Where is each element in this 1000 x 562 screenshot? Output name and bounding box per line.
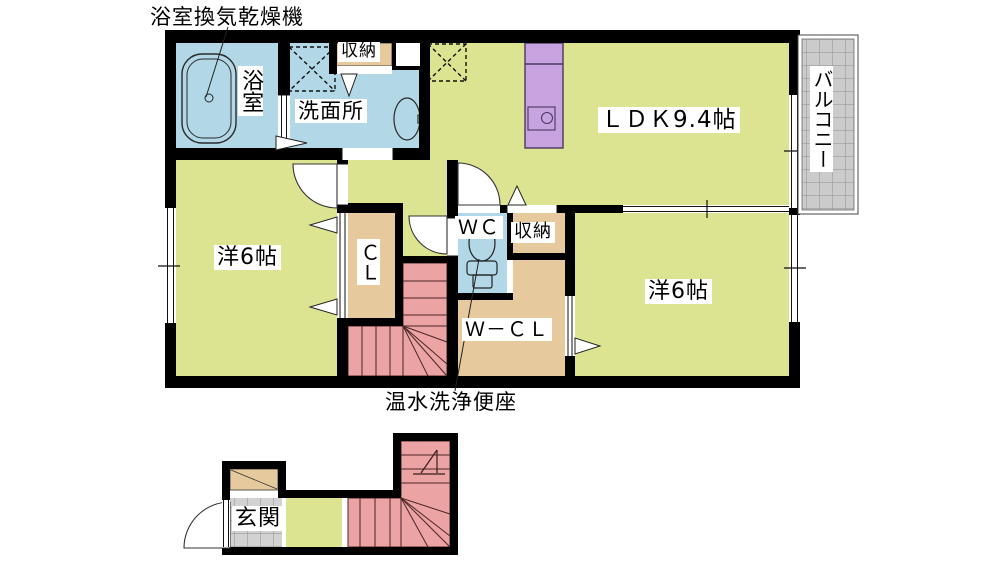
label-walkin-closet: Ｗ－ＣＬ: [462, 318, 552, 341]
floorplan-canvas: 浴室換気乾燥機 浴室 洗面所 収納 ＬＤＫ9.4帖 バルコニー 洋6帖 ＣＬ Ｗ…: [0, 0, 1000, 562]
floor1-plan: [184, 433, 458, 555]
label-west-room: 洋6帖: [214, 245, 281, 270]
label-closet: ＣＬ: [357, 239, 380, 285]
label-bathroom: 浴室: [238, 66, 263, 116]
label-washroom: 洗面所: [295, 99, 367, 123]
label-storage-top: 収納: [338, 42, 380, 62]
walkin-closet-area-1: [513, 253, 565, 376]
label-balcony: バルコニー: [810, 66, 833, 172]
label-ldk: ＬＤＫ9.4帖: [598, 107, 740, 133]
label-toilet-note: 温水洗浄便座: [382, 390, 520, 414]
entrance-door: [184, 500, 230, 548]
label-vent-dryer: 浴室換気乾燥機: [147, 5, 307, 29]
floor-plan-svg: [0, 0, 1000, 562]
label-storage-right: 収納: [511, 222, 555, 243]
label-east-room: 洋6帖: [645, 279, 712, 304]
storage-top-door-band: [335, 66, 392, 74]
kitchen-counter-icon: [525, 43, 563, 148]
label-wc: ＷＣ: [455, 216, 503, 239]
hall-1f-area: [286, 498, 342, 547]
pipe-space: [396, 43, 420, 66]
label-entrance: 玄関: [232, 506, 284, 531]
